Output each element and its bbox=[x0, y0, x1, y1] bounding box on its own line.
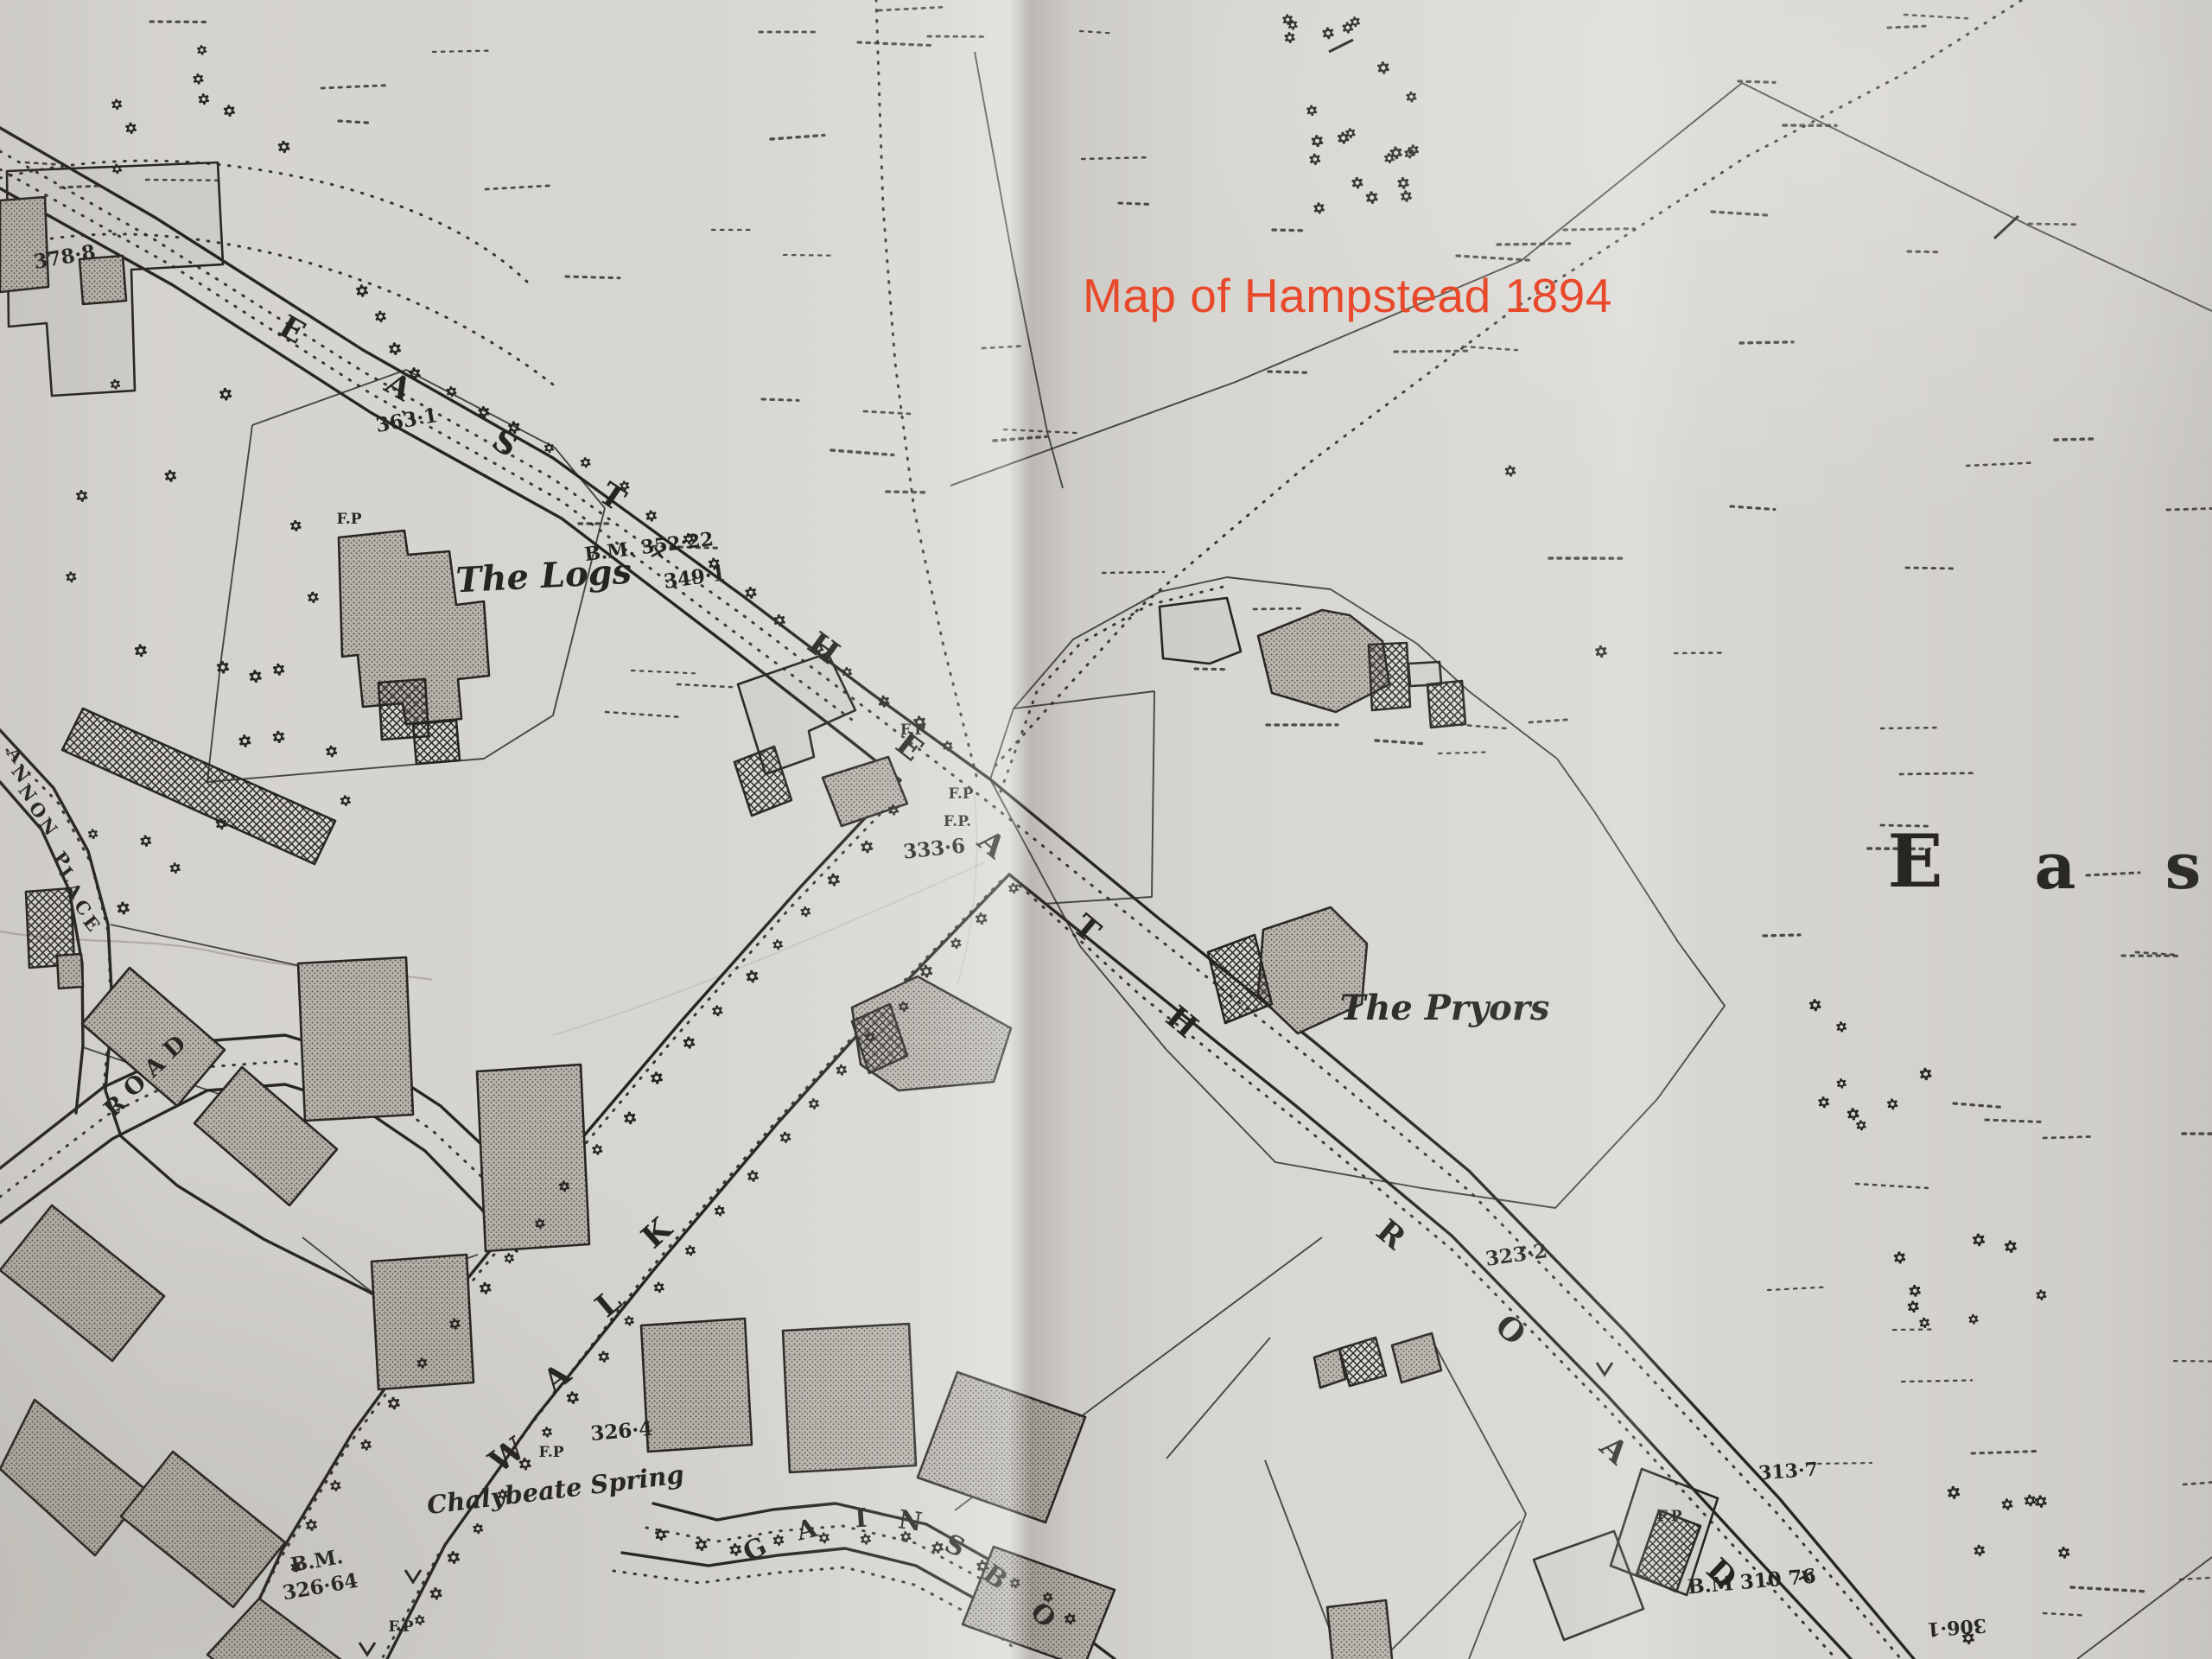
map-label: F.P bbox=[538, 1444, 563, 1461]
building bbox=[1408, 662, 1441, 686]
building bbox=[0, 197, 48, 292]
building bbox=[57, 954, 83, 988]
heath-dash bbox=[566, 276, 620, 278]
map-label: F.P. bbox=[944, 813, 971, 830]
map-label: F.P bbox=[336, 511, 361, 528]
map-label: F.P bbox=[1656, 1508, 1681, 1525]
map-label: a bbox=[2035, 829, 2079, 904]
hampstead-map-1894: 378·8EAST363·1F.PB.M. 352·22The Logs349·… bbox=[0, 0, 2212, 1659]
map-label: F.P bbox=[948, 785, 973, 803]
building-glasshouse bbox=[1369, 643, 1410, 710]
map-label: s bbox=[2165, 829, 2204, 904]
map-label: E bbox=[1887, 818, 1945, 904]
map-photo: 378·8EAST363·1F.PB.M. 352·22The Logs349·… bbox=[0, 0, 2212, 1659]
heath-dash bbox=[1900, 773, 1975, 774]
heath-dash bbox=[1395, 351, 1470, 352]
map-label: I bbox=[854, 1503, 868, 1535]
map-title-overlay: Map of Hampstead 1894 bbox=[1083, 268, 1612, 323]
map-label: F.P. bbox=[900, 721, 928, 739]
heath-dash bbox=[1740, 342, 1793, 343]
map-label: 313·7 bbox=[1758, 1459, 1819, 1485]
building-glasshouse bbox=[1427, 681, 1465, 728]
map-label: N bbox=[896, 1504, 924, 1537]
building bbox=[1327, 1600, 1393, 1659]
map-label: F.P bbox=[388, 1618, 413, 1636]
building bbox=[477, 1065, 589, 1251]
map-label: The Pryors bbox=[1340, 988, 1550, 1028]
heath-dash bbox=[1818, 1463, 1872, 1464]
building bbox=[298, 957, 413, 1121]
building-glasshouse bbox=[413, 721, 460, 764]
building bbox=[1160, 598, 1241, 664]
building bbox=[783, 1324, 916, 1472]
building bbox=[641, 1319, 752, 1452]
map-label: 306·1 bbox=[1926, 1614, 1987, 1641]
